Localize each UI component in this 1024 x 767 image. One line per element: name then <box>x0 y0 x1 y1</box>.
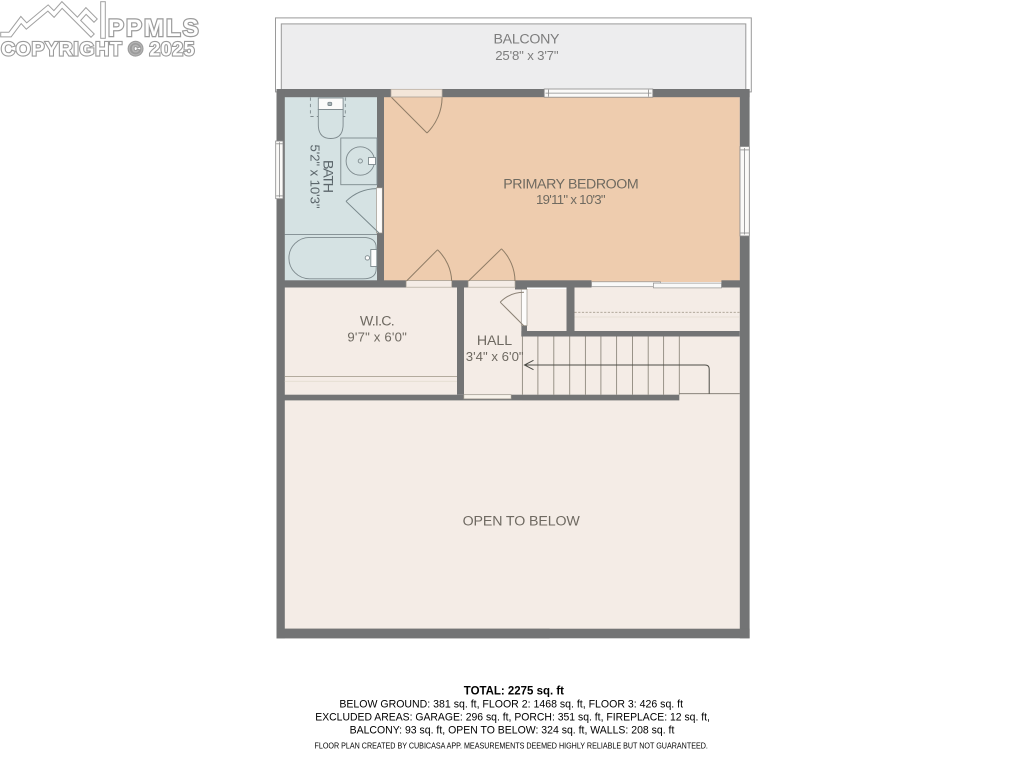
svg-text:19'11" x 10'3": 19'11" x 10'3" <box>536 192 606 207</box>
svg-text:25'8" x 3'7": 25'8" x 3'7" <box>495 48 559 63</box>
svg-text:W.I.C.: W.I.C. <box>360 314 395 330</box>
svg-text:3'4" x 6'0": 3'4" x 6'0" <box>466 349 524 364</box>
svg-text:5'2" x 10'3": 5'2" x 10'3" <box>308 145 323 209</box>
svg-text:BELOW GROUND: 381 sq. ft, FLOO: BELOW GROUND: 381 sq. ft, FLOOR 2: 1468 … <box>339 698 683 710</box>
svg-text:9'7" x 6'0": 9'7" x 6'0" <box>347 330 407 345</box>
svg-text:COPYRIGHT © 2025: COPYRIGHT © 2025 <box>1 39 195 61</box>
svg-text:BALCONY: 93 sq. ft, OPEN TO BE: BALCONY: 93 sq. ft, OPEN TO BELOW: 324 s… <box>350 724 675 736</box>
svg-text:EXCLUDED AREAS: GARAGE: 296 sq: EXCLUDED AREAS: GARAGE: 296 sq. ft, PORC… <box>315 711 710 723</box>
svg-text:OPEN TO BELOW: OPEN TO BELOW <box>463 513 581 529</box>
svg-text:HALL: HALL <box>477 333 512 349</box>
svg-text:FLOOR PLAN CREATED BY CUBICASA: FLOOR PLAN CREATED BY CUBICASA APP. MEAS… <box>315 741 708 751</box>
svg-text:BALCONY: BALCONY <box>494 32 561 48</box>
svg-text:PRIMARY BEDROOM: PRIMARY BEDROOM <box>503 176 639 192</box>
svg-text:TOTAL: 2275 sq. ft: TOTAL: 2275 sq. ft <box>464 685 564 697</box>
